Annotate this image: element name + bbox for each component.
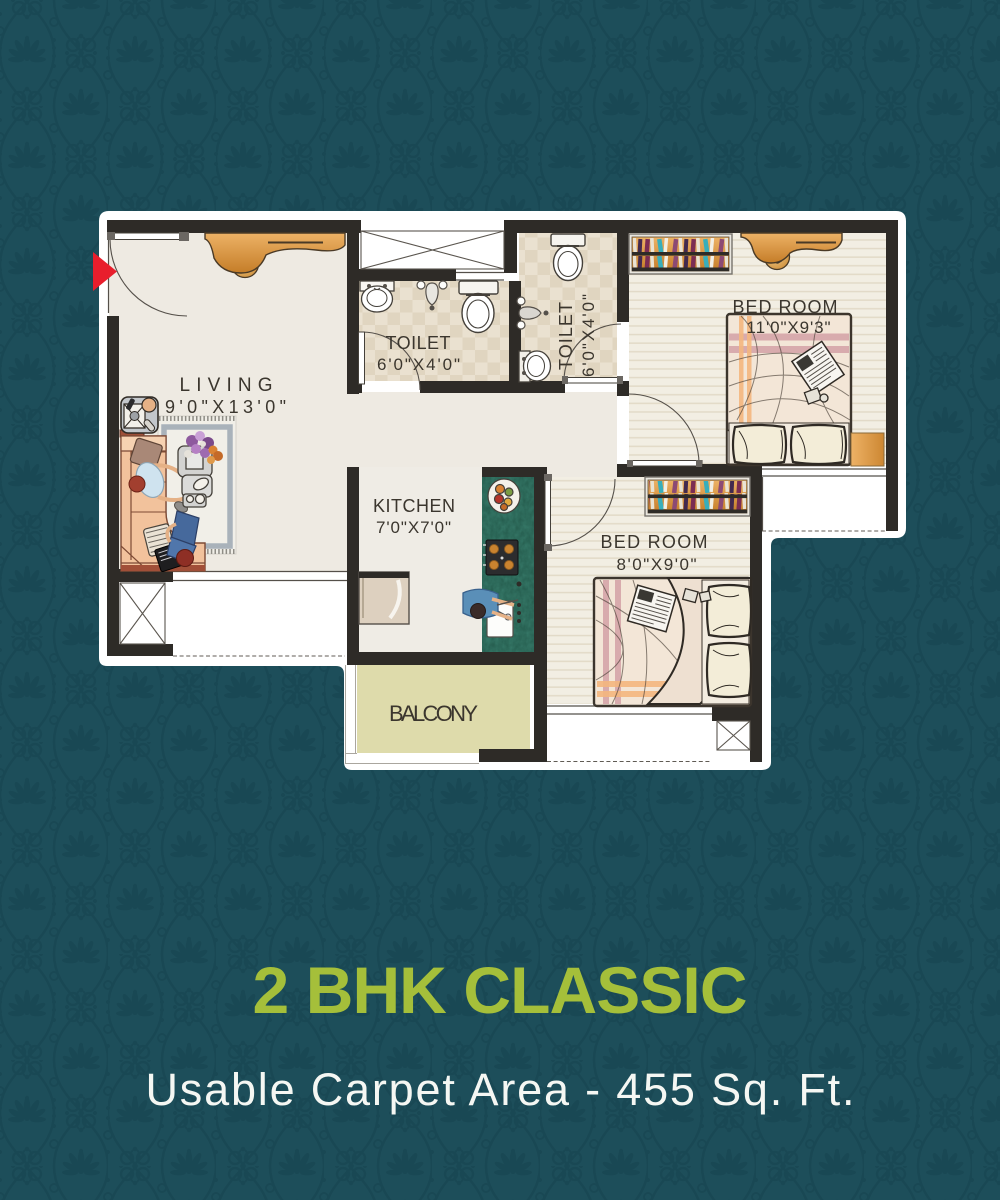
svg-text:KITCHEN: KITCHEN: [373, 496, 457, 516]
svg-text:TOILET: TOILET: [386, 333, 453, 353]
svg-text:2 BHK CLASSIC: 2 BHK CLASSIC: [253, 953, 748, 1027]
svg-text:11'0"X9'3": 11'0"X9'3": [747, 318, 832, 337]
svg-text:BALCONY: BALCONY: [389, 701, 481, 726]
svg-text:6'0"X4'0": 6'0"X4'0": [579, 293, 598, 377]
svg-text:BED ROOM: BED ROOM: [733, 297, 840, 317]
svg-text:7'0"X7'0": 7'0"X7'0": [376, 518, 452, 537]
svg-text:6'0"X4'0": 6'0"X4'0": [377, 355, 461, 374]
svg-text:8'0"X9'0": 8'0"X9'0": [617, 555, 698, 574]
svg-text:BED ROOM: BED ROOM: [601, 532, 710, 552]
svg-text:Usable Carpet Area - 455 Sq. F: Usable Carpet Area - 455 Sq. Ft.: [146, 1064, 855, 1115]
svg-text:TOILET: TOILET: [556, 300, 576, 370]
